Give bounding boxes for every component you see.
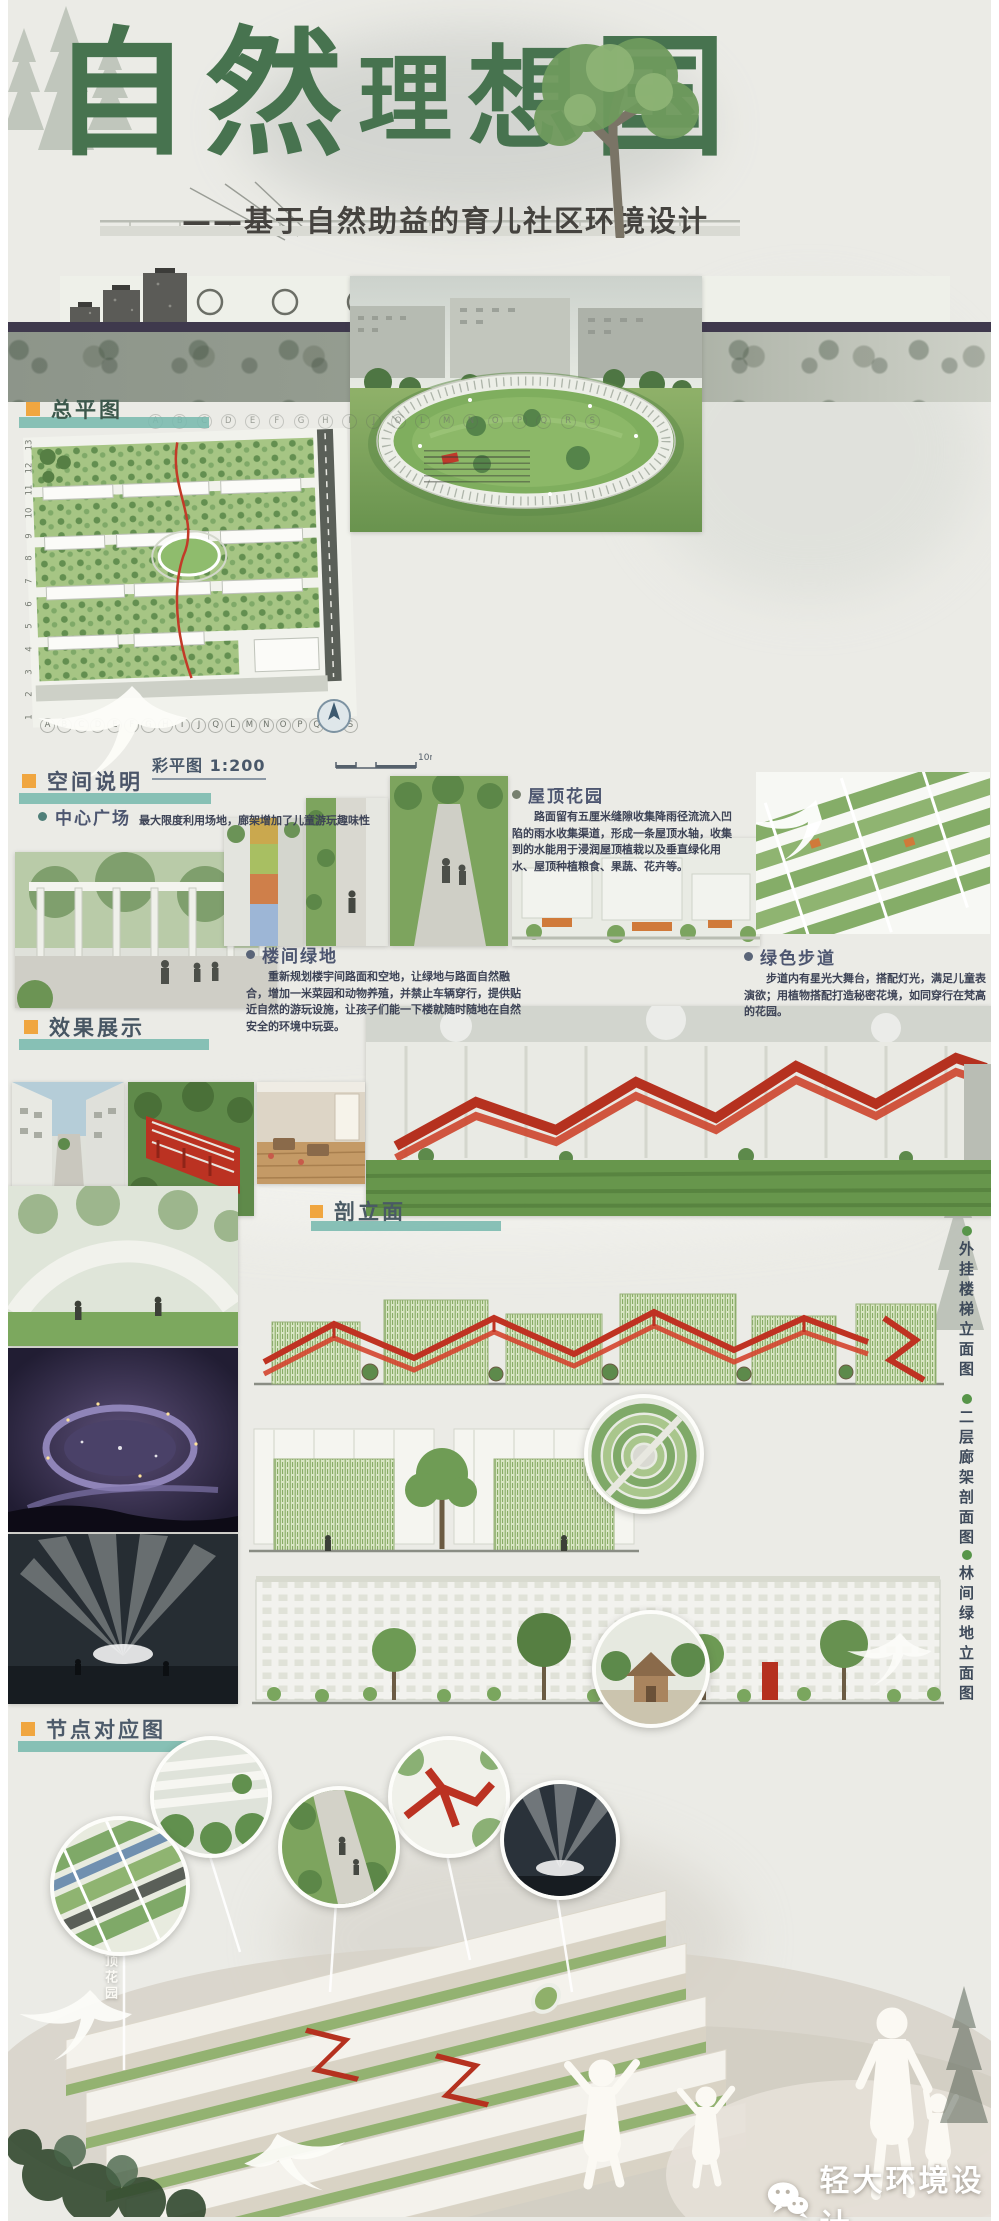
roof-plan-drawing [756,772,990,934]
bullet-dot-icon [512,790,521,799]
grid-letter: O [276,718,291,733]
stair-detail-callout [584,1394,704,1514]
section-heading: 效果展示 [49,1012,145,1042]
watermark: 轻大环境设计 [766,2156,999,2221]
wechat-icon [766,2179,810,2221]
stairs-elevation-drawing [244,1262,950,1402]
pergola-section-drawing [244,1404,644,1569]
hut-detail-callout [592,1610,710,1728]
bullet-dot-icon [744,952,753,961]
watermark-text: 轻大环境设计 [820,2156,999,2221]
vertical-label-text: 外挂楼梯立面图 [956,1241,977,1381]
grid-letter: S [585,414,600,429]
node-light-beams-callout [500,1780,620,1900]
red-structure-aerial [392,1740,506,1854]
curved-wall-render [8,1186,238,1346]
note-desc: 最大限度利用场地，廊架增加了儿童游玩趣味性 [139,813,370,830]
page-margin [0,0,8,2221]
grid-letter: P [512,414,527,429]
night-light-beams-render [8,1534,238,1704]
section-header-space-notes: 空间说明 [22,766,143,796]
grid-number: 12 [24,462,34,473]
title-char: 自 [52,26,190,164]
orange-square-icon [24,1020,38,1034]
section-heading: 剖立面 [334,1196,406,1226]
plan-grid-numbers: 13121110987654321 [24,440,35,722]
page-margin [991,0,999,2221]
orange-square-icon [26,402,40,416]
pergola-closeup [154,1740,268,1854]
note-title: 楼间绿地 [262,942,338,967]
grid-letter: L [225,718,240,733]
grid-letter: G [294,414,309,429]
grid-letter: N [259,718,274,733]
forest-hut-detail [596,1614,706,1724]
grid-letter: Q [391,414,406,429]
note-title: 中心广场 [55,804,131,829]
grid-number: 3 [24,669,34,674]
orange-square-icon [310,1205,323,1218]
note-title: 绿色步道 [760,944,836,969]
note-desc: 重新规划楼宇间路面和空地，让绿地与路面自然融合，增加一米菜园和动物养殖，并禁止车… [246,969,522,1035]
green-path-aerial [282,1790,396,1904]
grid-letter: O [488,414,503,429]
grid-number: 2 [24,692,34,697]
node-green-path-callout [278,1786,400,1908]
elevation-label-stairs: 外挂楼梯立面图 [956,1226,977,1381]
terraced-stairs-detail [588,1398,700,1510]
grid-number: 5 [24,624,34,629]
plan-grid-letters-top: ABCDEFGHIJQLMNOPQRS [148,414,600,429]
scale-mark-text: 10m [418,753,432,763]
note-roof-garden: 屋顶花园 路面留有五厘米缝隙收集降雨径流流入凹陷的雨水收集渠道，形成一条屋顶水轴… [512,782,740,875]
grid-letter: Q [536,414,551,429]
title-char: 然 [205,26,343,164]
title-char: 理 [358,54,452,148]
grid-letter: E [245,414,260,429]
note-central-plaza: 中心广场 最大限度利用场地，廊架增加了儿童游玩趣味性 [38,804,370,830]
vertical-label-text: 二层廊架剖面图 [956,1409,977,1549]
grid-letter: Q [208,718,223,733]
tree-illustration [468,26,706,238]
grid-number: 11 [24,485,34,496]
roof-garden-plan [54,1820,186,1952]
bullet-dot-icon [246,950,255,959]
grid-letter: R [561,414,576,429]
grid-number: 9 [24,533,34,538]
note-building-green: 楼间绿地 重新规划楼宇间路面和空地，让绿地与路面自然融合，增加一米菜园和动物养殖… [246,942,522,1035]
path-between-buildings-photo [224,818,304,946]
note-desc: 路面留有五厘米缝隙收集降雨径流流入凹陷的雨水收集渠道，形成一条屋顶水轴，收集到的… [512,809,740,875]
section-header-effects: 效果展示 [24,1012,145,1042]
green-dot-icon [962,1550,972,1560]
light-beams-closeup [504,1784,616,1896]
elevation-label-forest: 林间绿地立面图 [956,1550,977,1705]
vertical-label-text: 林间绿地立面图 [956,1565,977,1705]
grid-number: 8 [24,556,34,561]
grid-number: 10 [24,508,34,519]
section-header-sections: 剖立面 [310,1196,406,1226]
render-caption-text [424,450,530,486]
interior-room-photo [257,1082,365,1184]
node-roof-garden-callout [50,1816,190,1956]
red-stairs-building-render [366,1006,992,1216]
section-heading: 总平图 [51,394,123,424]
green-dot-icon [962,1394,972,1404]
section-header-master-plan: 总平图 [26,394,123,424]
grid-letter: P [292,718,307,733]
note-green-walkway: 绿色步道 步道内有星光大舞台，搭配灯光，满足儿童表演欲；用植物搭配打造秘密花境，… [744,944,992,1021]
grid-letter: M [439,414,454,429]
grid-number: 6 [24,601,34,606]
section-heading: 空间说明 [47,766,143,796]
grid-letter: L [415,414,430,429]
grid-letter: D [221,414,236,429]
poster: 自然理想国 ——基于自然助益的育儿社区环境设计 总平图 [0,0,999,2221]
grid-letter: M [242,718,257,733]
grid-letter: I [342,414,357,429]
elevation-label-pergola: 二层廊架剖面图 [956,1394,977,1549]
grid-number: 1 [24,714,34,719]
night-plaza-render [8,1348,238,1532]
grid-number: 4 [24,646,34,651]
bullet-dot-icon [38,812,47,821]
compass-icon [314,696,354,736]
grid-letter: N [463,414,478,429]
green-dot-icon [962,1226,972,1236]
grid-letter: F [269,414,284,429]
orange-square-icon [22,774,36,788]
scale-bar: 10m [332,750,432,776]
grid-number: 7 [24,578,34,583]
grid-letter: J [366,414,381,429]
note-desc: 步道内有星光大舞台，搭配灯光，满足儿童表演欲；用植物搭配打造秘密花境，如同穿行在… [744,971,992,1021]
grass-path-photo [390,776,508,946]
dove-icon [846,1630,936,1690]
grid-letter: H [318,414,333,429]
note-title: 屋顶花园 [528,782,604,807]
node-red-structure-callout [388,1736,510,1858]
grid-number: 13 [24,440,34,451]
circular-plaza-render [350,276,702,532]
